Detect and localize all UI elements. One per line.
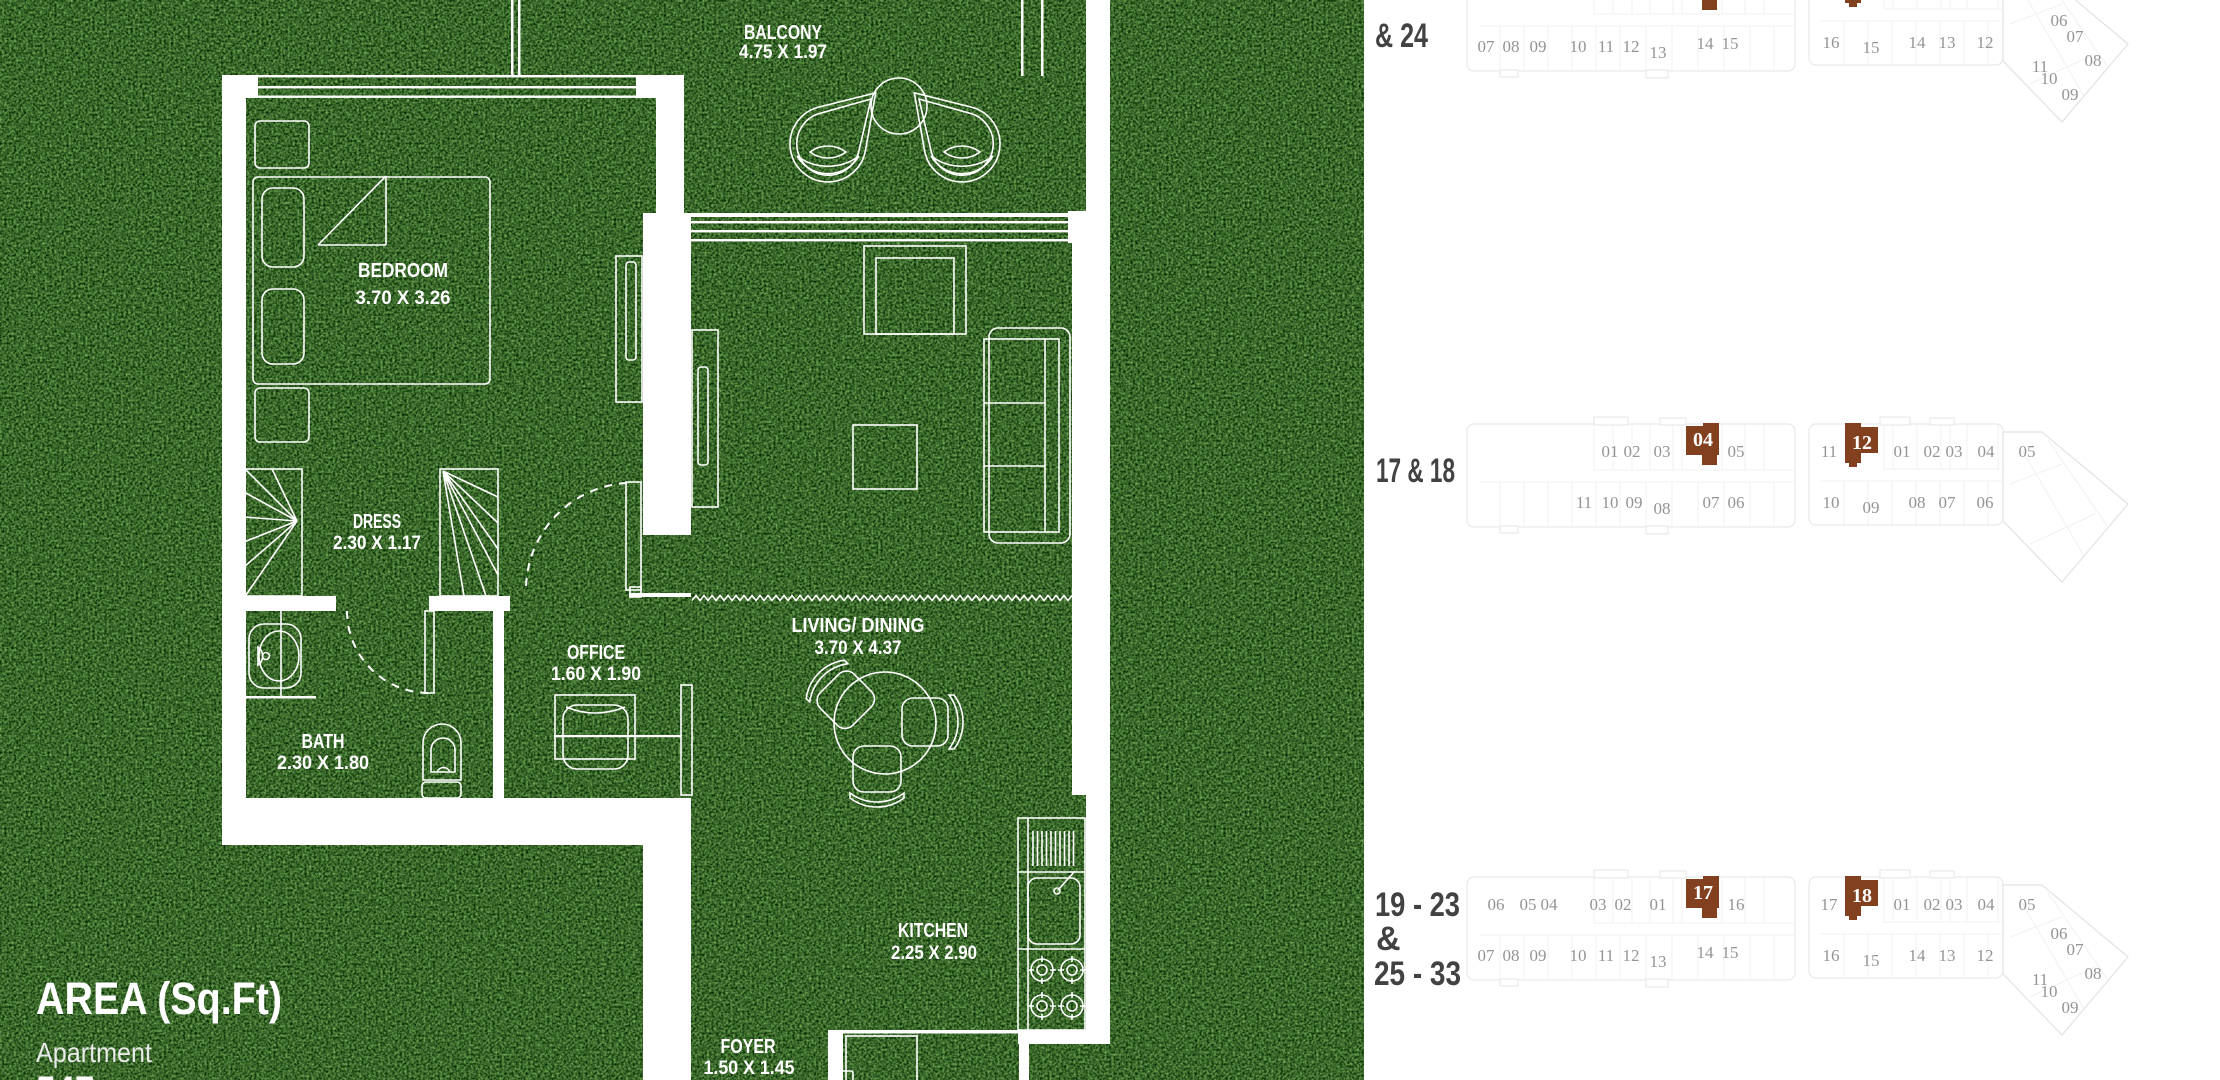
svg-text:FOYER: FOYER — [721, 1036, 776, 1058]
svg-text:17 & 18: 17 & 18 — [1376, 452, 1455, 490]
svg-text:BATH: BATH — [302, 731, 345, 753]
svg-text:2.25 X 2.90: 2.25 X 2.90 — [891, 943, 977, 964]
svg-text:15: 15 — [1722, 943, 1739, 962]
svg-text:12: 12 — [1977, 946, 1994, 965]
svg-text:10: 10 — [1570, 37, 1587, 56]
svg-text:01: 01 — [1894, 895, 1911, 914]
svg-text:09: 09 — [2062, 85, 2079, 104]
svg-text:Apartment: Apartment — [36, 1037, 152, 1068]
svg-text:KITCHEN: KITCHEN — [898, 920, 968, 942]
svg-text:06: 06 — [2051, 924, 2068, 943]
svg-text:05: 05 — [1520, 895, 1537, 914]
svg-text:06: 06 — [1977, 493, 1994, 512]
svg-text:09: 09 — [2062, 998, 2079, 1017]
svg-text:02: 02 — [1924, 442, 1941, 461]
svg-text:1.60 X 1.90: 1.60 X 1.90 — [551, 664, 641, 685]
svg-text:07: 07 — [1703, 493, 1721, 512]
svg-text:09: 09 — [1626, 493, 1643, 512]
svg-text:17: 17 — [1821, 895, 1839, 914]
svg-text:12: 12 — [1623, 37, 1640, 56]
svg-text:10: 10 — [1602, 493, 1619, 512]
svg-text:01: 01 — [1650, 895, 1667, 914]
svg-text:08: 08 — [2085, 964, 2102, 983]
svg-text:1.50 X 1.45: 1.50 X 1.45 — [704, 1058, 795, 1079]
svg-text:08: 08 — [1503, 37, 1520, 56]
svg-text:02: 02 — [1615, 895, 1632, 914]
svg-text:03: 03 — [1946, 442, 1963, 461]
svg-text:10: 10 — [1823, 493, 1840, 512]
svg-text:14: 14 — [1909, 33, 1927, 52]
svg-text:547: 547 — [36, 1070, 94, 1080]
svg-text:12: 12 — [1852, 432, 1872, 454]
svg-text:08: 08 — [1909, 493, 1926, 512]
svg-text:09: 09 — [1530, 946, 1547, 965]
svg-text:13: 13 — [1650, 43, 1667, 62]
svg-text:11: 11 — [1576, 493, 1592, 512]
svg-text:13: 13 — [1650, 952, 1667, 971]
svg-text:11: 11 — [1821, 442, 1837, 461]
svg-text:13: 13 — [1939, 33, 1956, 52]
svg-text:04: 04 — [1541, 895, 1559, 914]
svg-text:06: 06 — [1728, 493, 1745, 512]
svg-text:01: 01 — [1894, 442, 1911, 461]
svg-text:11: 11 — [1598, 946, 1614, 965]
svg-text:02: 02 — [1924, 895, 1941, 914]
svg-text:11: 11 — [1598, 37, 1614, 56]
svg-text:07: 07 — [2067, 27, 2085, 46]
svg-text:16: 16 — [1728, 895, 1745, 914]
svg-text:16: 16 — [1823, 946, 1840, 965]
svg-text:15: 15 — [1863, 951, 1880, 970]
svg-text:04: 04 — [1978, 895, 1996, 914]
svg-text:06: 06 — [2051, 11, 2068, 30]
svg-text:05: 05 — [2019, 895, 2036, 914]
svg-text:10: 10 — [1570, 946, 1587, 965]
svg-text:2.30 X 1.80: 2.30 X 1.80 — [277, 753, 369, 774]
svg-text:& 24: & 24 — [1375, 17, 1428, 55]
svg-text:07: 07 — [1478, 946, 1496, 965]
svg-text:04: 04 — [1693, 429, 1713, 451]
svg-text:OFFICE: OFFICE — [567, 642, 625, 664]
svg-text:LIVING/ DINING: LIVING/ DINING — [792, 615, 925, 637]
svg-text:14: 14 — [1697, 34, 1715, 53]
svg-text:05: 05 — [1728, 442, 1745, 461]
svg-text:07: 07 — [1478, 37, 1496, 56]
svg-text:14: 14 — [1697, 943, 1715, 962]
svg-text:03: 03 — [1946, 895, 1963, 914]
svg-text:03: 03 — [1654, 442, 1671, 461]
svg-text:AREA (Sq.Ft): AREA (Sq.Ft) — [36, 973, 282, 1024]
svg-text:15: 15 — [1722, 34, 1739, 53]
svg-text:04: 04 — [1978, 442, 1996, 461]
svg-text:25 - 33: 25 - 33 — [1374, 955, 1461, 993]
svg-text:02: 02 — [1624, 442, 1641, 461]
svg-text:DRESS: DRESS — [353, 511, 401, 533]
svg-text:2.30 X 1.17: 2.30 X 1.17 — [333, 533, 421, 554]
svg-text:3.70 X 4.37: 3.70 X 4.37 — [815, 638, 902, 659]
svg-text:08: 08 — [2085, 51, 2102, 70]
svg-text:12: 12 — [1623, 946, 1640, 965]
svg-text:&: & — [1376, 920, 1401, 958]
svg-text:13: 13 — [1939, 946, 1956, 965]
svg-text:12: 12 — [1977, 33, 1994, 52]
svg-text:07: 07 — [1939, 493, 1957, 512]
svg-text:15: 15 — [1863, 38, 1880, 57]
svg-text:09: 09 — [1863, 498, 1880, 517]
svg-text:19 - 23: 19 - 23 — [1375, 886, 1460, 924]
svg-text:09: 09 — [1530, 37, 1547, 56]
svg-text:BALCONY: BALCONY — [744, 22, 823, 44]
svg-text:08: 08 — [1503, 946, 1520, 965]
svg-text:06: 06 — [1488, 895, 1505, 914]
svg-text:18: 18 — [1852, 885, 1872, 907]
svg-text:4.75 X 1.97: 4.75 X 1.97 — [739, 42, 827, 63]
svg-text:14: 14 — [1909, 946, 1927, 965]
svg-text:08: 08 — [1654, 499, 1671, 518]
svg-text:17: 17 — [1693, 882, 1713, 904]
svg-text:10: 10 — [2041, 69, 2058, 88]
svg-text:07: 07 — [2067, 940, 2085, 959]
svg-text:10: 10 — [2041, 982, 2058, 1001]
svg-text:3.70 X 3.26: 3.70 X 3.26 — [356, 288, 451, 309]
svg-text:05: 05 — [2019, 442, 2036, 461]
svg-text:03: 03 — [1590, 895, 1607, 914]
svg-text:01: 01 — [1602, 442, 1619, 461]
svg-text:BEDROOM: BEDROOM — [358, 260, 448, 282]
svg-text:16: 16 — [1823, 33, 1840, 52]
